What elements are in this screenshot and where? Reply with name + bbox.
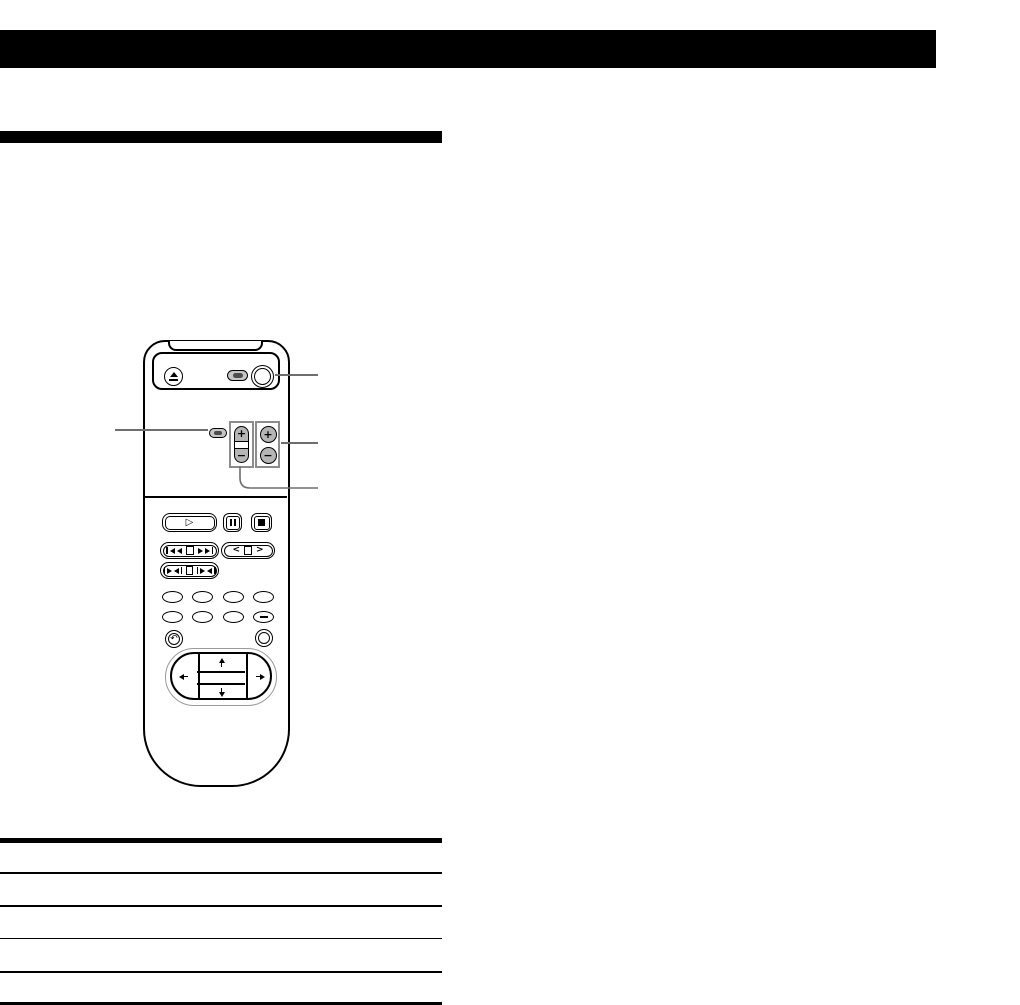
top-button-panel xyxy=(152,352,280,390)
rocker-band xyxy=(235,441,248,449)
center-key xyxy=(186,566,193,575)
oval-button-3 xyxy=(223,591,244,603)
manual-page: + − + − ▷ < xyxy=(0,0,1020,1005)
inner-ring xyxy=(254,368,272,386)
section-heading-bar xyxy=(0,131,442,143)
scan-right-icon xyxy=(200,568,205,574)
play-button: ▷ xyxy=(162,513,217,532)
oval-button-7 xyxy=(223,611,244,623)
prev-icon xyxy=(166,547,168,554)
callout-line-curved xyxy=(230,460,322,492)
left-arrow-icon xyxy=(179,674,188,680)
pill-core xyxy=(214,431,222,435)
round-button xyxy=(255,629,273,647)
return-button: ↶ xyxy=(165,630,183,648)
next-icon xyxy=(212,547,214,554)
callout-line-group xyxy=(281,442,318,444)
stop-button xyxy=(251,513,272,532)
down-arrow-icon xyxy=(219,688,225,697)
scan-rocker-button xyxy=(160,562,219,579)
volume-plus-segment: + xyxy=(235,427,248,441)
shuttle-left-icon: < xyxy=(232,546,240,555)
shuttle-rocker-button: < > xyxy=(221,542,275,559)
up-arrow-icon xyxy=(219,658,225,667)
table-header-rule xyxy=(0,838,442,843)
oval-button-5 xyxy=(162,611,183,623)
oval-button-1 xyxy=(162,591,183,603)
right-arrow-icon xyxy=(256,674,265,680)
remote-control-illustration: + − + − ▷ < xyxy=(143,340,290,787)
table-rule-4 xyxy=(0,971,442,973)
pill-core xyxy=(233,373,243,378)
callout-line-top-right xyxy=(275,374,318,376)
stop-icon xyxy=(258,519,265,526)
oval-button-2 xyxy=(192,591,213,603)
mode-pill-button xyxy=(209,428,227,438)
oval-button-6 xyxy=(192,611,213,623)
table-rule-1 xyxy=(0,872,442,874)
play-icon: ▷ xyxy=(186,517,194,528)
eject-icon xyxy=(169,372,178,381)
large-round-button xyxy=(251,365,274,388)
scan-left-icon xyxy=(167,568,172,574)
eject-button xyxy=(164,367,183,386)
table-rule-2 xyxy=(0,905,442,907)
top-banner-bar xyxy=(0,30,936,68)
prev-next-rocker-button xyxy=(160,542,219,559)
oval-button-4 xyxy=(253,591,274,603)
oval-button-dash xyxy=(253,611,274,623)
dash-icon xyxy=(260,616,268,618)
pause-button xyxy=(223,513,242,532)
dpad xyxy=(170,652,272,700)
group-plus-button: + xyxy=(260,426,277,443)
center-key xyxy=(186,546,194,555)
pause-icon xyxy=(230,519,232,526)
section-divider-line xyxy=(145,496,287,498)
power-pill-button xyxy=(227,370,248,381)
volume-rocker: + − xyxy=(234,426,249,463)
shuttle-right-icon: > xyxy=(256,546,264,555)
table-rule-3 xyxy=(0,938,442,940)
ir-window xyxy=(168,341,263,351)
center-key xyxy=(244,546,252,555)
callout-line-left xyxy=(115,429,208,431)
